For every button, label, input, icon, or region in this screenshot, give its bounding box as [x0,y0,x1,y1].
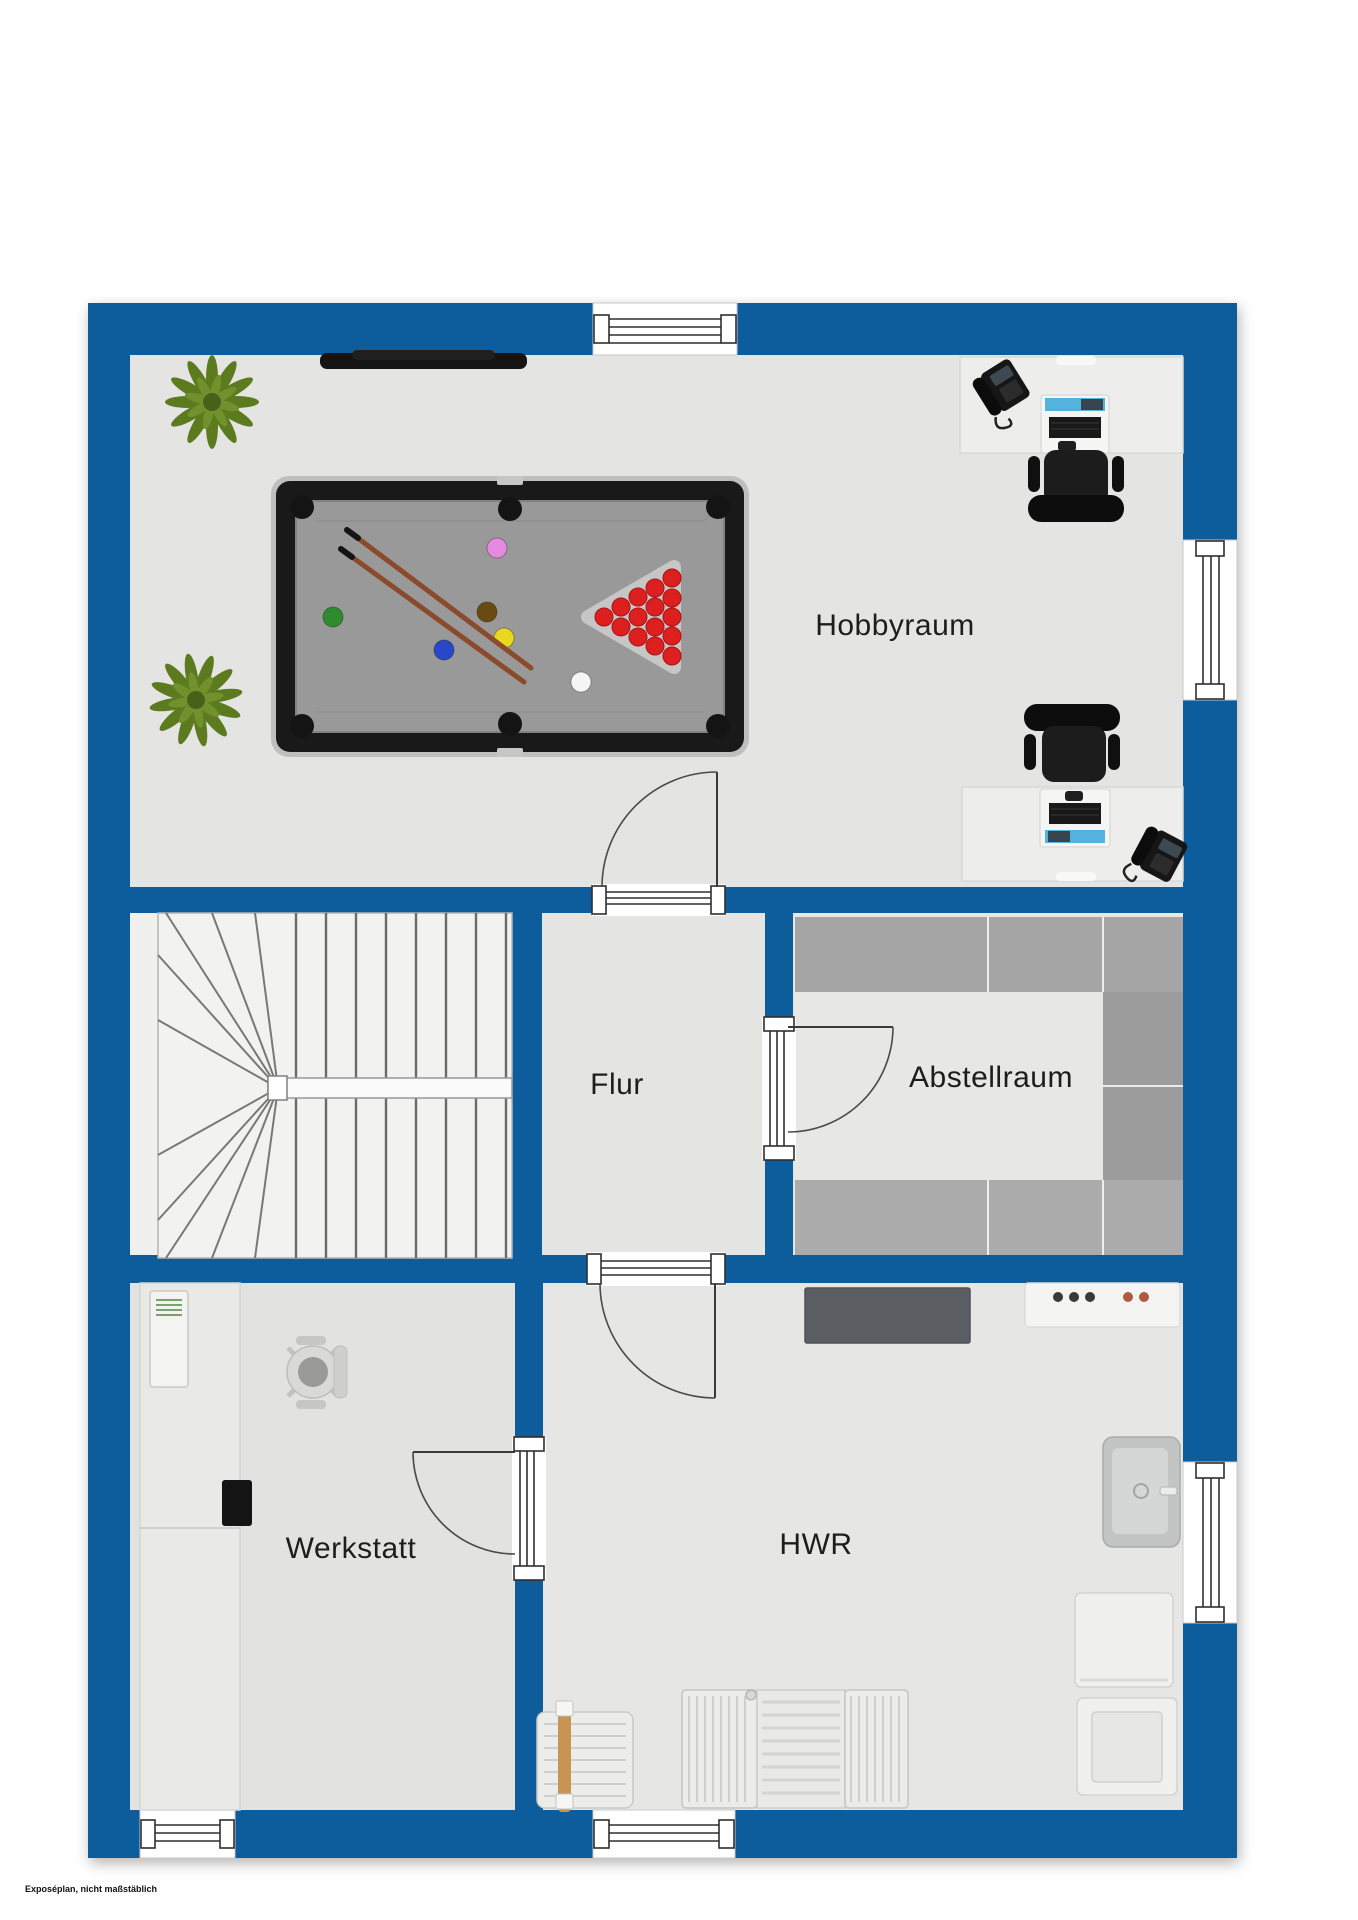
doormat-icon [757,1690,845,1808]
stair-landing-rail [268,1078,512,1098]
room-label-flur: Flur [590,1068,644,1102]
winder-stairs-icon [158,913,512,1258]
room-label-werkstatt: Werkstatt [286,1532,417,1566]
sink-icon [1103,1437,1180,1547]
window-right-lower [1183,1462,1237,1623]
storage-box-icon [222,1480,252,1526]
floor-plan-drawing [0,0,1358,1920]
sideboard-icon [805,1288,970,1343]
computer-icon [1040,789,1110,847]
floor-plan-page: Hobbyraum Flur Abstellraum Werkstatt HWR… [0,0,1358,1920]
window-bottom-middle [593,1810,735,1858]
wall-tv-bracket [352,350,495,360]
radiator-icon [682,1690,757,1808]
room-label-hobbyraum: Hobbyraum [815,609,975,643]
window-top [593,303,737,355]
desk-cable-slot [1056,872,1096,881]
drying-rack-icon [537,1701,633,1812]
room-label-hwr: HWR [779,1528,852,1562]
plan-disclaimer-note: Exposéplan, nicht maßstäblich [25,1884,157,1894]
room-floor-flur [542,913,765,1255]
desk-cable-slot [1056,356,1096,365]
window-right-upper [1183,540,1237,700]
cooktop-counter-icon [1025,1283,1180,1327]
pool-table-icon [271,476,749,757]
window-bottom-left [140,1810,235,1858]
washing-machine-icon [1075,1593,1173,1687]
radiator-icon [845,1690,908,1808]
stair-newel-post [268,1076,287,1100]
computer-icon [1041,395,1109,453]
heater-cabinet-icon [150,1291,188,1387]
dryer-icon [1077,1698,1177,1795]
room-label-abstellraum: Abstellraum [909,1061,1073,1095]
